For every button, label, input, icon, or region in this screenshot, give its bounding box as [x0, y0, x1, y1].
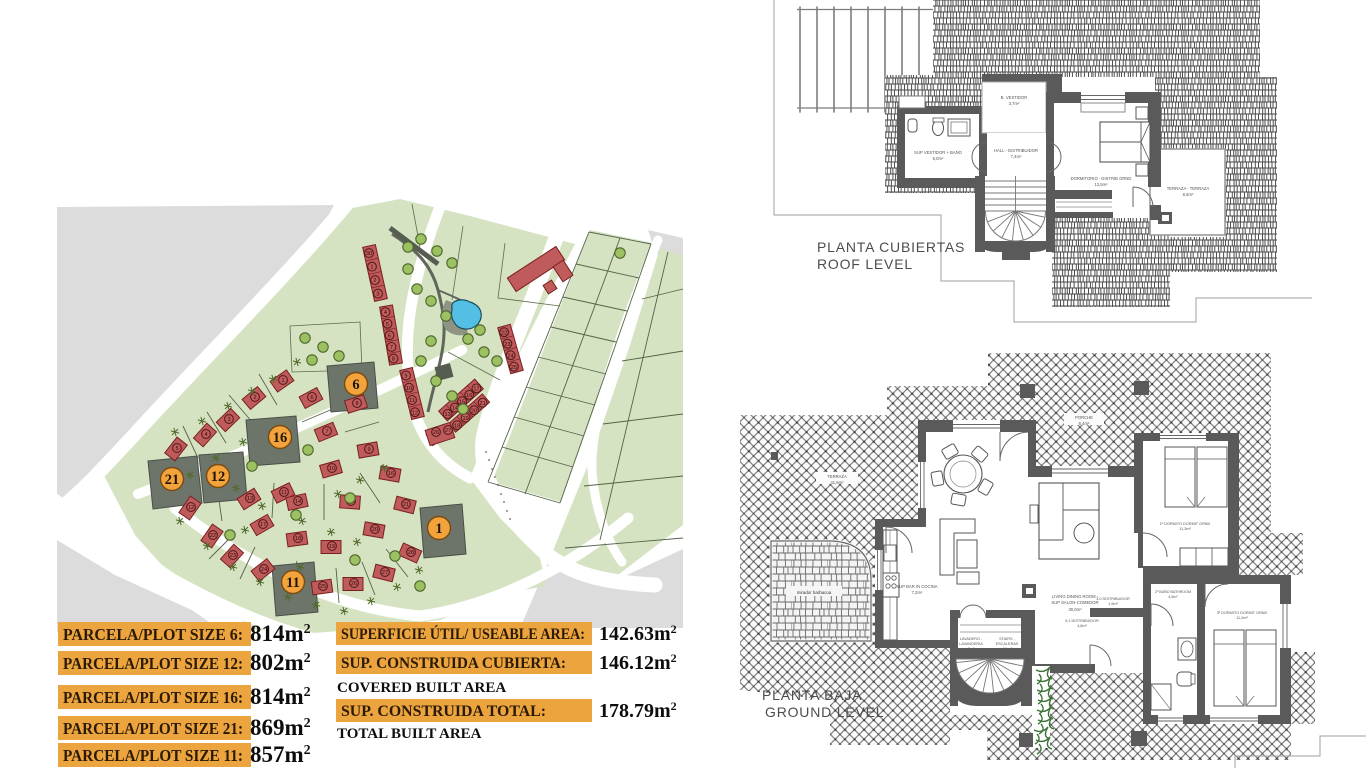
svg-text:26: 26 — [433, 430, 439, 436]
svg-text:30: 30 — [366, 251, 372, 257]
svg-text:PARCELA/PLOT SIZE 12:: PARCELA/PLOT SIZE 12: — [63, 654, 243, 673]
svg-text:12: 12 — [211, 469, 226, 485]
svg-text:18: 18 — [454, 423, 460, 429]
svg-text:PLANTA CUBIERTAS: PLANTA CUBIERTAS — [817, 239, 965, 255]
svg-text:18: 18 — [295, 536, 301, 542]
svg-text:20: 20 — [372, 527, 378, 533]
svg-text:ROOF LEVEL: ROOF LEVEL — [817, 256, 913, 272]
svg-text:10: 10 — [406, 386, 412, 392]
svg-text:11: 11 — [281, 490, 287, 496]
svg-text:7: 7 — [325, 429, 328, 435]
svg-text:9: 9 — [404, 374, 407, 380]
svg-text:16: 16 — [466, 393, 472, 399]
svg-text:ESCALERAS: ESCALERAS — [996, 642, 1019, 646]
svg-text:11: 11 — [409, 398, 415, 404]
svg-text:4: 4 — [384, 310, 387, 316]
svg-text:STAIRS -: STAIRS - — [999, 637, 1015, 641]
svg-text:PARCELA/PLOT SIZE 16:: PARCELA/PLOT SIZE 16: — [63, 688, 243, 707]
svg-text:869m2: 869m2 — [250, 715, 311, 740]
svg-text:11,3m²: 11,3m² — [1179, 527, 1191, 531]
svg-text:41,6m²: 41,6m² — [830, 480, 844, 485]
svg-text:24: 24 — [261, 567, 267, 573]
svg-text:802m2: 802m2 — [250, 650, 311, 675]
svg-text:22: 22 — [501, 330, 507, 336]
svg-text:28: 28 — [408, 550, 414, 556]
svg-text:SUP VESTIDOR + BAÑO: SUP VESTIDOR + BAÑO — [914, 150, 962, 155]
svg-text:20: 20 — [471, 408, 477, 414]
svg-text:2: 2 — [253, 395, 256, 401]
svg-text:COVERED BUILT AREA: COVERED BUILT AREA — [337, 680, 506, 696]
svg-text:1º DORMITO DORMIT GRND: 1º DORMITO DORMIT GRND — [1160, 522, 1211, 526]
svg-text:1: 1 — [370, 265, 373, 271]
svg-text:PORCHE: PORCHE — [1075, 415, 1093, 420]
svg-text:7: 7 — [390, 345, 393, 351]
svg-text:6: 6 — [388, 333, 391, 339]
svg-text:4,6m²: 4,6m² — [1077, 624, 1087, 628]
svg-text:19: 19 — [329, 544, 335, 550]
svg-text:TOTAL BUILT AREA: TOTAL BUILT AREA — [337, 726, 482, 742]
svg-text:3,7m²: 3,7m² — [1009, 101, 1020, 106]
svg-text:146.12m2: 146.12m2 — [599, 651, 677, 674]
svg-text:21: 21 — [480, 401, 486, 407]
svg-text:SUPERFICIE ÚTIL/ USEABLE AREA:: SUPERFICIE ÚTIL/ USEABLE AREA: — [341, 626, 585, 643]
svg-text:SUP BAR IN COCINA: SUP BAR IN COCINA — [896, 584, 937, 589]
svg-text:6: 6 — [352, 377, 359, 393]
svg-text:4,5m²: 4,5m² — [1168, 595, 1178, 599]
svg-text:12: 12 — [188, 505, 194, 511]
svg-text:LAVANDERIA: LAVANDERIA — [959, 642, 983, 646]
svg-text:PARCELA/PLOT SIZE 21:: PARCELA/PLOT SIZE 21: — [63, 719, 243, 738]
svg-text:11,0m²: 11,0m² — [1236, 616, 1248, 620]
svg-text:8,6m²: 8,6m² — [1183, 192, 1194, 197]
svg-text:13: 13 — [445, 412, 451, 418]
svg-text:27: 27 — [445, 428, 451, 434]
svg-text:PARCELA/PLOT SIZE 6:: PARCELA/PLOT SIZE 6: — [63, 625, 243, 644]
svg-text:10: 10 — [329, 466, 335, 472]
svg-text:1: 1 — [281, 378, 284, 384]
svg-text:8: 8 — [355, 401, 358, 407]
svg-text:9: 9 — [367, 447, 370, 453]
svg-text:17: 17 — [473, 386, 479, 392]
svg-text:7,2m²: 7,2m² — [912, 590, 923, 595]
svg-text:22: 22 — [210, 533, 216, 539]
svg-text:1,9m²: 1,9m² — [1108, 602, 1118, 606]
svg-text:857m2: 857m2 — [250, 742, 311, 767]
svg-text:SUP. CONSTRUIDA TOTAL:: SUP. CONSTRUIDA TOTAL: — [341, 703, 546, 720]
svg-text:16: 16 — [273, 430, 288, 446]
svg-text:2º BAÑO BATHROOM: 2º BAÑO BATHROOM — [1155, 589, 1191, 594]
svg-text:9,1 DISTRIBUIDOR: 9,1 DISTRIBUIDOR — [1065, 619, 1099, 623]
svg-text:4: 4 — [204, 432, 207, 438]
svg-text:DORMITORIO - DISTRIB GRND: DORMITORIO - DISTRIB GRND — [1071, 176, 1132, 181]
svg-text:1: 1 — [435, 521, 442, 537]
svg-text:814m2: 814m2 — [250, 684, 311, 709]
svg-text:19: 19 — [463, 416, 469, 422]
svg-text:GROUND LEVEL: GROUND LEVEL — [765, 704, 884, 720]
svg-text:142.63m2: 142.63m2 — [599, 622, 677, 645]
svg-text:3: 3 — [376, 292, 379, 298]
svg-text:5: 5 — [175, 446, 178, 452]
svg-text:LAVADERO -: LAVADERO - — [960, 637, 983, 641]
svg-text:LIVING DINING ROOM -: LIVING DINING ROOM - — [1052, 594, 1099, 599]
svg-text:14: 14 — [295, 499, 301, 505]
svg-text:5: 5 — [386, 322, 389, 328]
svg-text:23: 23 — [504, 342, 510, 348]
svg-text:21: 21 — [403, 502, 409, 508]
svg-text:24: 24 — [508, 353, 514, 359]
svg-text:178.79m2: 178.79m2 — [599, 699, 677, 722]
svg-text:7,4m²: 7,4m² — [1011, 154, 1022, 159]
svg-text:2: 2 — [373, 278, 376, 284]
svg-text:25: 25 — [511, 365, 517, 371]
svg-text:814m2: 814m2 — [250, 621, 311, 646]
svg-text:3,0 DISTRIBUIDOR: 3,0 DISTRIBUIDOR — [1096, 597, 1130, 601]
svg-text:11: 11 — [286, 575, 300, 591]
svg-text:8: 8 — [392, 357, 395, 363]
svg-text:21: 21 — [165, 472, 180, 488]
svg-text:SUP SALON-COMEDOR: SUP SALON-COMEDOR — [1051, 600, 1098, 605]
svg-text:HALL - DISTRIBUIDOR: HALL - DISTRIBUIDOR — [994, 148, 1038, 153]
svg-text:TERRAZA: TERRAZA — [827, 474, 847, 479]
svg-text:17: 17 — [260, 522, 266, 528]
svg-text:3: 3 — [227, 417, 230, 423]
svg-text:6,4m²: 6,4m² — [1079, 421, 1090, 426]
svg-text:3º DORMITO DORMIT GRND: 3º DORMITO DORMIT GRND — [1217, 611, 1268, 615]
svg-text:30,0m²: 30,0m² — [1068, 607, 1082, 612]
svg-text:SUP. CONSTRUIDA CUBIERTA:: SUP. CONSTRUIDA CUBIERTA: — [341, 655, 566, 672]
svg-text:13: 13 — [247, 496, 253, 502]
svg-text:TERRAZA - TERRAZA: TERRAZA - TERRAZA — [1167, 186, 1210, 191]
svg-text:6: 6 — [310, 395, 313, 401]
svg-text:27: 27 — [382, 570, 388, 576]
svg-text:16: 16 — [388, 471, 394, 477]
svg-text:PARCELA/PLOT SIZE 11:: PARCELA/PLOT SIZE 11: — [63, 746, 243, 765]
svg-text:PLANTA BAJA: PLANTA BAJA — [762, 687, 862, 703]
svg-text:12: 12 — [412, 410, 418, 416]
svg-text:mirador barbacoa: mirador barbacoa — [797, 590, 832, 595]
svg-text:13,5m²: 13,5m² — [1094, 182, 1108, 187]
svg-text:23: 23 — [230, 553, 236, 559]
svg-text:5,0m²: 5,0m² — [933, 156, 944, 161]
svg-text:26: 26 — [351, 581, 357, 587]
svg-text:B. VESTIDOR: B. VESTIDOR — [1001, 95, 1028, 100]
svg-text:25: 25 — [320, 584, 326, 590]
svg-text:14: 14 — [452, 406, 458, 412]
